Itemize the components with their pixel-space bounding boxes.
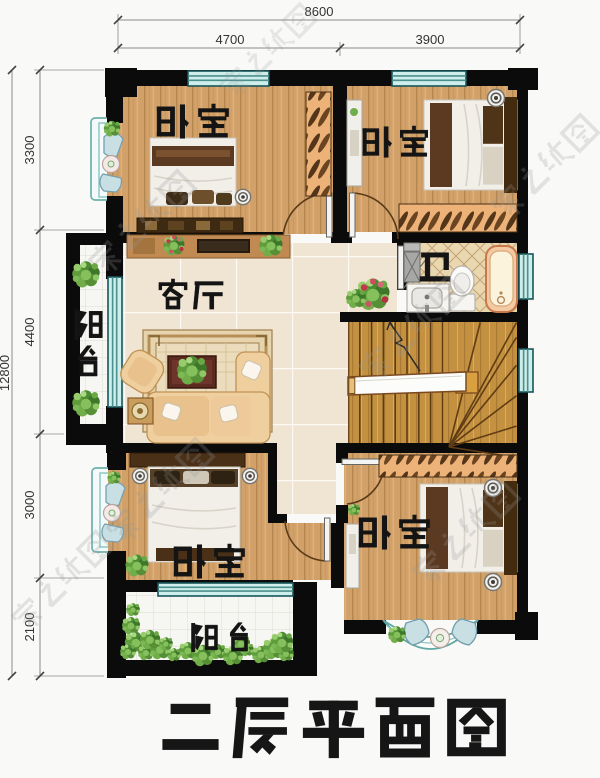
svg-text:4400: 4400 — [22, 318, 37, 347]
svg-text:4700: 4700 — [216, 32, 245, 47]
svg-text:3300: 3300 — [22, 136, 37, 165]
svg-text:3900: 3900 — [416, 32, 445, 47]
svg-text:12800: 12800 — [0, 355, 12, 391]
svg-text:3000: 3000 — [22, 491, 37, 520]
